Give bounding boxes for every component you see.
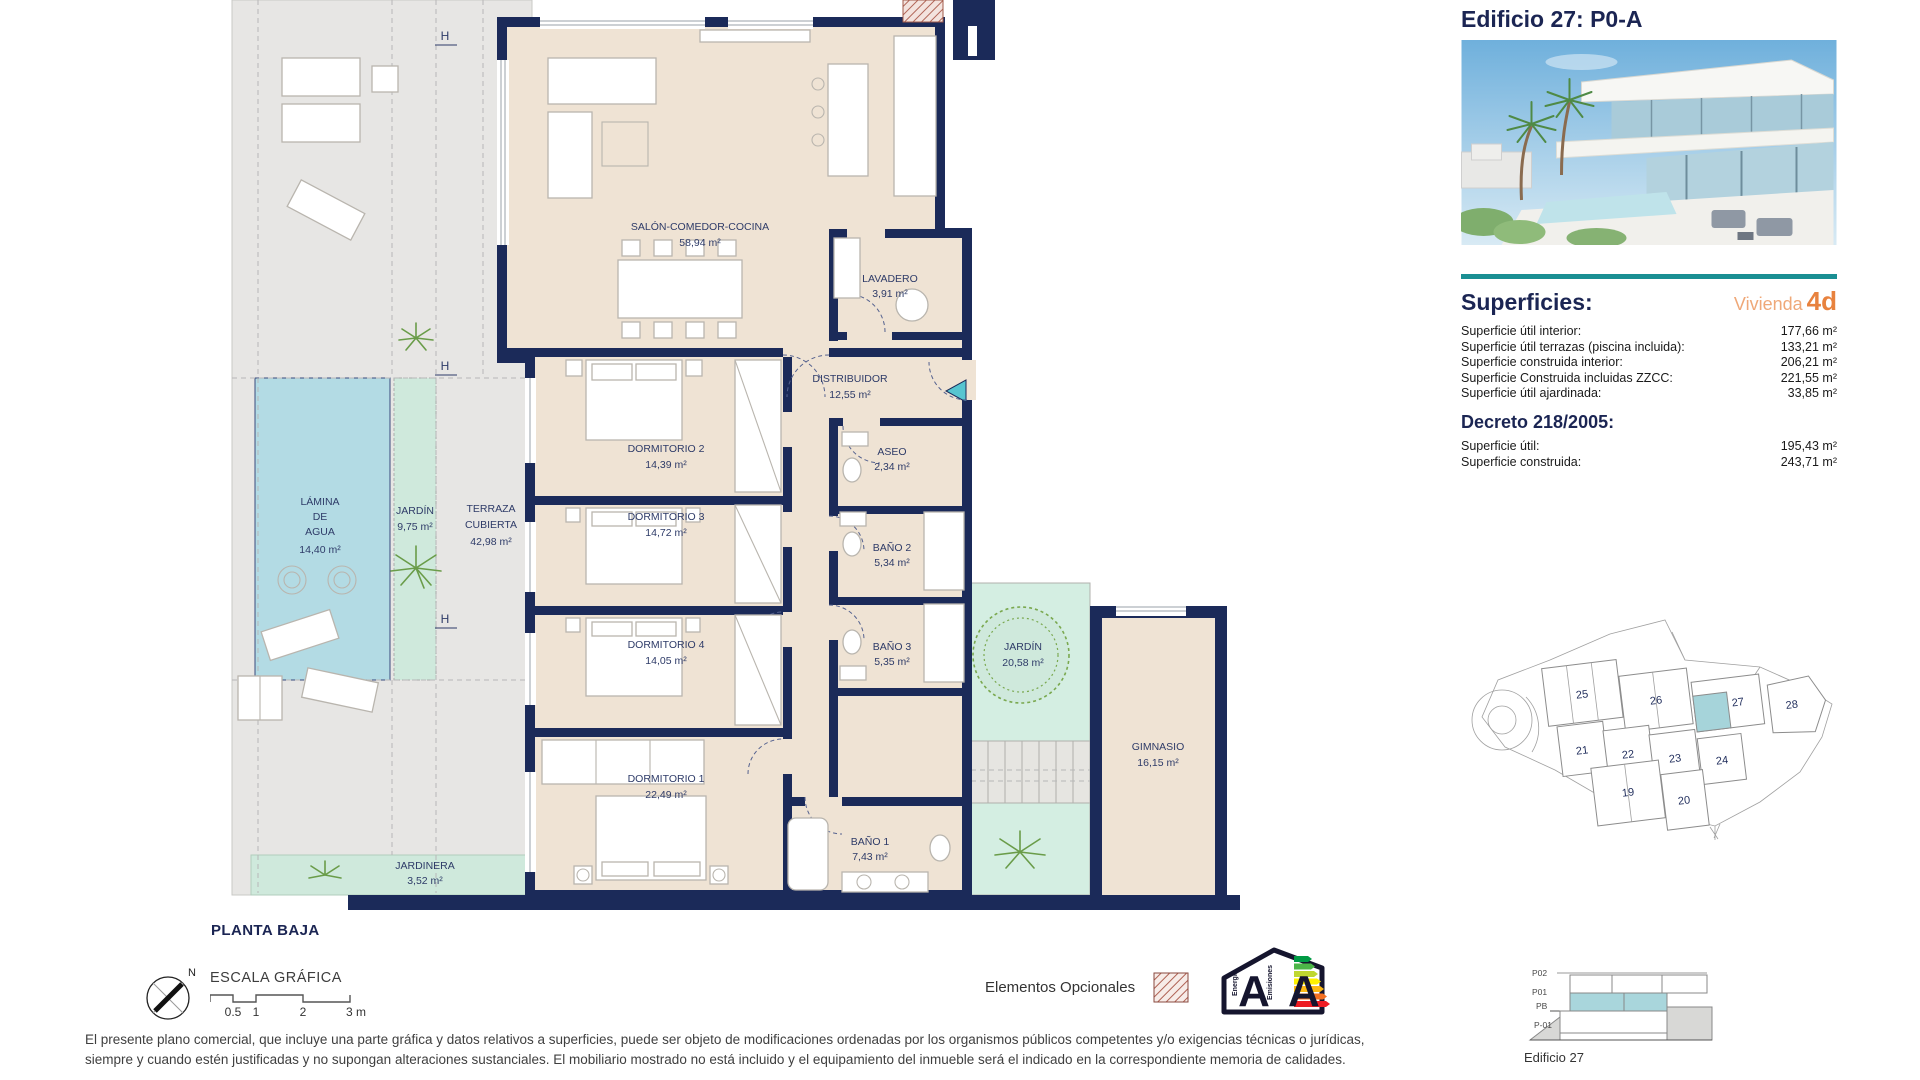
room-label-jardin-lateral: JARDÍN — [396, 504, 434, 517]
site-building-28: 28 — [1785, 699, 1799, 712]
svg-text:DE: DE — [313, 511, 328, 523]
room-label-dormitorio1: DORMITORIO 1 — [628, 773, 705, 785]
energy-rating-icon: Energía Emisiones A A — [1210, 938, 1332, 1022]
room-label-aseo: ASEO — [877, 446, 906, 458]
svg-text:0.5: 0.5 — [225, 1005, 242, 1019]
hatch-swatch-icon — [1153, 972, 1189, 1003]
svg-text:5,34 m²: 5,34 m² — [874, 557, 910, 569]
svg-text:3,52 m²: 3,52 m² — [407, 875, 443, 887]
north-label: N — [188, 967, 196, 979]
svg-text:5,35 m²: 5,35 m² — [874, 656, 910, 668]
energy-letter: A — [1238, 967, 1270, 1016]
page-title: Edificio 27: P0-A — [1461, 6, 1837, 33]
superficie-row: Superficie útil interior:177,66 m² — [1461, 324, 1837, 340]
highlighted-floor — [1570, 993, 1667, 1011]
optional-element-hatch — [903, 0, 943, 22]
svg-text:H: H — [441, 29, 450, 43]
emissions-letter: A — [1288, 967, 1320, 1016]
decreto-row: Superficie construida:243,71 m² — [1461, 455, 1837, 471]
room-label-jardin-patio: JARDÍN — [1004, 640, 1042, 653]
north-compass-icon: N — [136, 962, 206, 1028]
site-building-27: 27 — [1731, 696, 1745, 709]
optional-elements-label: Elementos Opcionales — [985, 979, 1135, 996]
room-label-distribuidor: DISTRIBUIDOR — [812, 373, 888, 385]
room-label-jardinera: JARDINERA — [395, 860, 455, 872]
villa-render-image — [1461, 40, 1837, 245]
svg-text:CUBIERTA: CUBIERTA — [465, 519, 517, 531]
superficie-row: Superficie útil terrazas (piscina inclui… — [1461, 340, 1837, 356]
bottom-wall — [348, 895, 1240, 910]
superficie-row: Superficie Construida incluidas ZZCC:221… — [1461, 371, 1837, 387]
room-label-terraza: TERRAZA — [466, 503, 515, 515]
svg-text:14,72 m²: 14,72 m² — [645, 527, 687, 539]
room-label-bano2: BAÑO 2 — [873, 541, 912, 554]
room-label-dormitorio3: DORMITORIO 3 — [628, 511, 705, 523]
svg-text:2,34 m²: 2,34 m² — [874, 461, 910, 473]
optional-elements-legend: Elementos Opcionales — [985, 972, 1189, 1003]
site-building-19: 19 — [1621, 786, 1635, 799]
svg-text:22,49 m²: 22,49 m² — [645, 789, 687, 801]
floorplan-page: H H H SALÓN-COMEDOR-COCINA 58,94 m² LAVA… — [0, 0, 1920, 1080]
superficies-section: Superficies: Vivienda4d Superficie útil … — [1461, 286, 1837, 402]
decreto-section: Decreto 218/2005: Superficie útil:195,43… — [1461, 412, 1837, 470]
level-label-p02: P02 — [1532, 968, 1547, 978]
svg-text:14,40 m²: 14,40 m² — [299, 544, 341, 556]
highlighted-unit — [1693, 692, 1731, 732]
room-label-lavadero: LAVADERO — [862, 273, 918, 285]
svg-text:42,98 m²: 42,98 m² — [470, 536, 512, 548]
site-plan: 25 26 27 28 21 22 23 24 19 20 — [1460, 612, 1840, 840]
floor-name-label: PLANTA BAJA — [211, 922, 320, 939]
site-building-20: 20 — [1677, 794, 1691, 807]
svg-text:H: H — [441, 359, 450, 373]
svg-text:20,58 m²: 20,58 m² — [1002, 657, 1044, 669]
svg-text:58,94 m²: 58,94 m² — [679, 237, 721, 249]
site-building-26: 26 — [1649, 694, 1663, 707]
room-label-salon: SALÓN-COMEDOR-COCINA — [631, 220, 769, 233]
site-building-23: 23 — [1668, 752, 1682, 765]
level-label-p-01: P-01 — [1534, 1020, 1552, 1030]
room-label-dormitorio2: DORMITORIO 2 — [628, 443, 705, 455]
teal-divider — [1461, 274, 1837, 279]
decreto-heading: Decreto 218/2005: — [1461, 412, 1837, 433]
graphic-scale: ESCALA GRÁFICA 0.5 1 2 3 m — [210, 970, 380, 1025]
svg-text:16,15 m²: 16,15 m² — [1137, 757, 1179, 769]
svg-text:9,75 m²: 9,75 m² — [397, 521, 433, 533]
decreto-row: Superficie útil:195,43 m² — [1461, 439, 1837, 455]
superficies-heading: Superficies: — [1461, 289, 1593, 316]
vivienda-tag: Vivienda4d — [1734, 286, 1837, 317]
svg-text:12,55 m²: 12,55 m² — [829, 389, 871, 401]
room-label-bano1: BAÑO 1 — [851, 835, 890, 848]
site-building-24: 24 — [1715, 754, 1729, 767]
section-caption: Edificio 27 — [1524, 1050, 1584, 1065]
level-label-p01: P01 — [1532, 987, 1547, 997]
svg-text:AGUA: AGUA — [305, 526, 335, 538]
building-section-diagram: P02 P01 PB P-01 Edificio 27 — [1512, 945, 1737, 1070]
superficie-row: Superficie útil ajardinada:33,85 m² — [1461, 386, 1837, 402]
svg-text:7,43 m²: 7,43 m² — [852, 851, 888, 863]
svg-text:3,91 m²: 3,91 m² — [872, 288, 908, 300]
scale-bar-graphic: 0.5 1 2 3 m — [210, 986, 380, 1020]
svg-text:14,05 m²: 14,05 m² — [645, 655, 687, 667]
floor-plan-drawing: H H H SALÓN-COMEDOR-COCINA 58,94 m² LAVA… — [230, 0, 1240, 915]
patio-garden — [953, 583, 1090, 895]
tree — [973, 607, 1069, 703]
room-label-gimnasio: GIMNASIO — [1132, 741, 1185, 753]
jardinera-strip — [251, 855, 533, 895]
svg-text:3 m: 3 m — [346, 1005, 366, 1019]
outdoor-terrace — [232, 0, 533, 895]
svg-text:14,39 m²: 14,39 m² — [645, 459, 687, 471]
scale-title: ESCALA GRÁFICA — [210, 970, 380, 986]
superficie-row: Superficie construida interior:206,21 m² — [1461, 355, 1837, 371]
svg-text:H: H — [441, 612, 450, 626]
svg-text:1: 1 — [253, 1005, 260, 1019]
svg-text:2: 2 — [300, 1005, 307, 1019]
level-label-pb: PB — [1536, 1001, 1548, 1011]
site-building-21: 21 — [1575, 744, 1589, 757]
room-label-bano3: BAÑO 3 — [873, 640, 912, 653]
site-building-22: 22 — [1621, 748, 1635, 761]
room-label-dormitorio4: DORMITORIO 4 — [628, 639, 705, 651]
site-building-25: 25 — [1575, 688, 1589, 701]
disclaimer-text: El presente plano comercial, que incluye… — [85, 1030, 1445, 1070]
wall-slit — [968, 26, 977, 56]
room-label-lamina: LÁMINA — [300, 495, 339, 508]
